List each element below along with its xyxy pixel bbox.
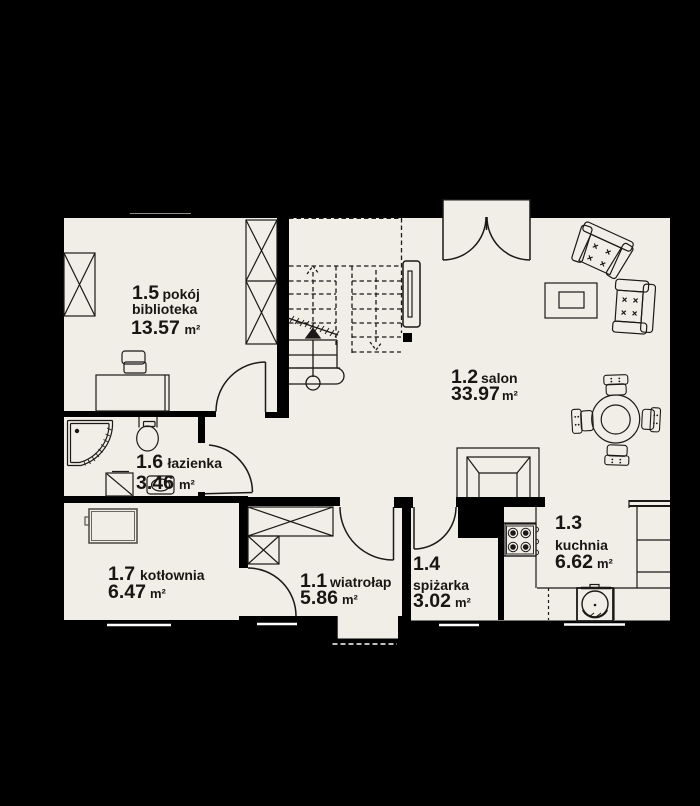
- svg-text:m²: m²: [502, 388, 519, 403]
- svg-text:m²: m²: [179, 477, 196, 492]
- svg-text:m²: m²: [455, 595, 472, 610]
- svg-text:13.57: 13.57: [131, 317, 180, 339]
- svg-text:m²: m²: [597, 556, 614, 571]
- svg-text:pokój: pokój: [163, 286, 200, 302]
- svg-text:5.86: 5.86: [300, 587, 338, 609]
- svg-text:33.97: 33.97: [451, 383, 500, 405]
- svg-text:3.02: 3.02: [413, 590, 451, 612]
- svg-text:1.4: 1.4: [413, 553, 440, 575]
- svg-text:łazienka: łazienka: [168, 455, 223, 471]
- svg-text:3.46: 3.46: [136, 472, 174, 494]
- svg-text:1.6: 1.6: [136, 451, 163, 473]
- svg-text:1.3: 1.3: [555, 512, 582, 534]
- svg-text:m²: m²: [342, 592, 359, 607]
- svg-text:wiatrołap: wiatrołap: [329, 574, 391, 590]
- svg-text:6.62: 6.62: [555, 551, 593, 573]
- svg-text:kotłownia: kotłownia: [140, 567, 205, 583]
- svg-text:m²: m²: [185, 322, 202, 337]
- svg-text:6.47: 6.47: [108, 581, 146, 603]
- svg-text:biblioteka: biblioteka: [132, 301, 198, 317]
- svg-text:m²: m²: [150, 586, 167, 601]
